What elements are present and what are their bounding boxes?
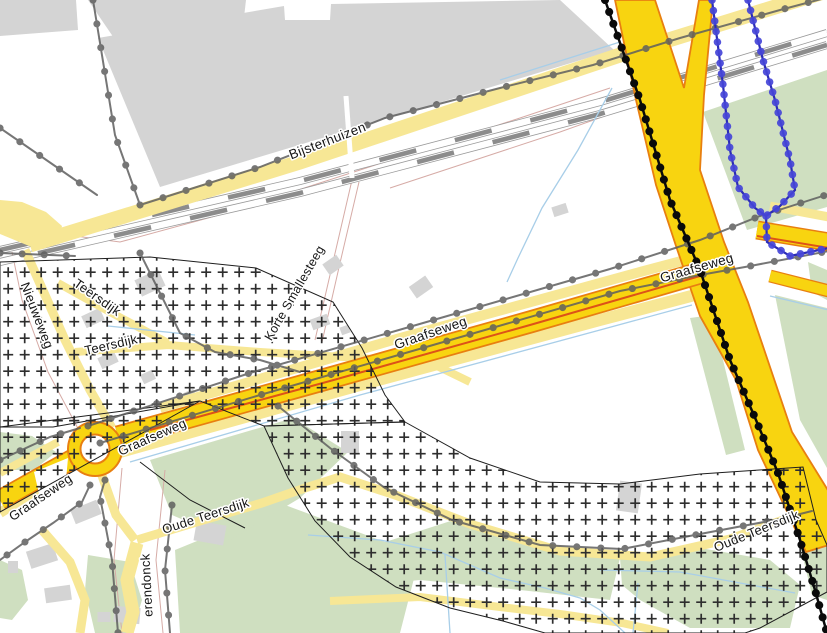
- building: [98, 612, 111, 622]
- building: [0, 0, 78, 36]
- map-viewport[interactable]: BijsterhuizenNieuwewegTeersdijkTeersdijk…: [0, 0, 827, 633]
- map-canvas[interactable]: BijsterhuizenNieuwewegTeersdijkTeersdijk…: [0, 0, 827, 633]
- building: [8, 561, 18, 573]
